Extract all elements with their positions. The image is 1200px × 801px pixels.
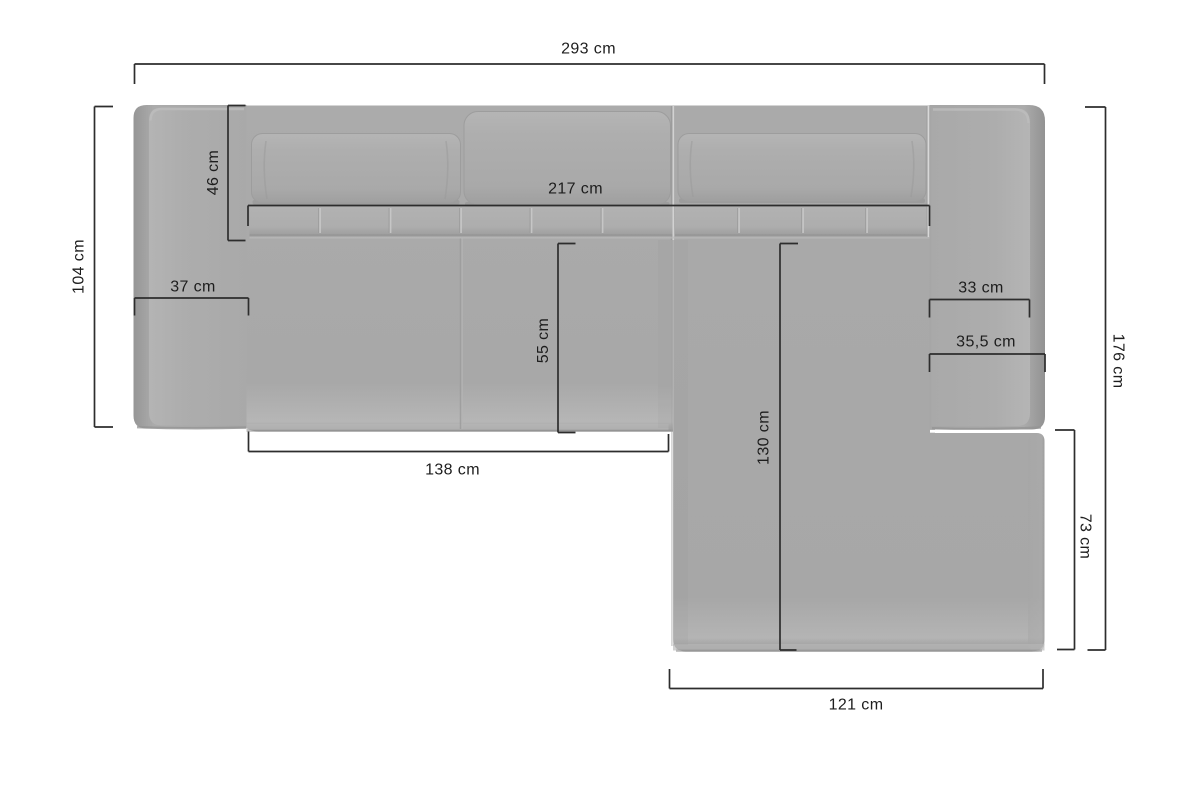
svg-text:293 cm: 293 cm <box>561 41 616 58</box>
svg-text:35,5 cm: 35,5 cm <box>956 334 1016 351</box>
svg-text:176 cm: 176 cm <box>1110 334 1127 389</box>
svg-text:37 cm: 37 cm <box>170 279 216 296</box>
svg-text:104 cm: 104 cm <box>71 239 88 294</box>
svg-text:138 cm: 138 cm <box>425 462 480 479</box>
svg-text:130 cm: 130 cm <box>756 410 773 465</box>
svg-text:33 cm: 33 cm <box>958 280 1004 297</box>
svg-text:73 cm: 73 cm <box>1077 514 1094 560</box>
svg-text:46 cm: 46 cm <box>205 150 222 196</box>
svg-text:55 cm: 55 cm <box>535 318 552 364</box>
svg-text:121 cm: 121 cm <box>829 697 884 714</box>
svg-text:217 cm: 217 cm <box>548 181 603 198</box>
